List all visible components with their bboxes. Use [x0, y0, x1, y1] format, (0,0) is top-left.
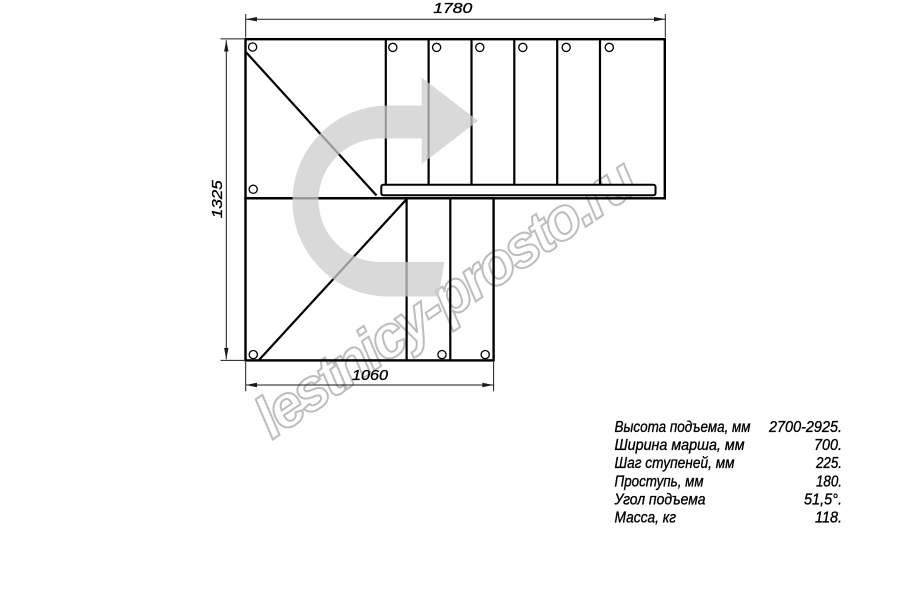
svg-text:1780: 1780 [433, 1, 472, 17]
svg-text:1060: 1060 [352, 368, 388, 384]
svg-text:2700-2925.: 2700-2925. [768, 419, 842, 436]
svg-text:Проступь, мм: Проступь, мм [615, 473, 704, 490]
svg-text:Шаг ступеней, мм: Шаг ступеней, мм [615, 455, 735, 472]
svg-text:Ширина марша, мм: Ширина марша, мм [615, 437, 745, 454]
svg-text:225.: 225. [815, 455, 842, 472]
svg-text:1325: 1325 [210, 179, 226, 218]
svg-text:51,5°.: 51,5°. [804, 491, 842, 508]
svg-text:700.: 700. [814, 437, 842, 454]
svg-text:Масса, кг: Масса, кг [615, 510, 677, 527]
svg-text:Высота подъема, мм: Высота подъема, мм [615, 419, 751, 436]
svg-text:180.: 180. [816, 473, 842, 490]
svg-text:118.: 118. [815, 510, 842, 527]
svg-text:Угол подъема: Угол подъема [614, 491, 706, 508]
